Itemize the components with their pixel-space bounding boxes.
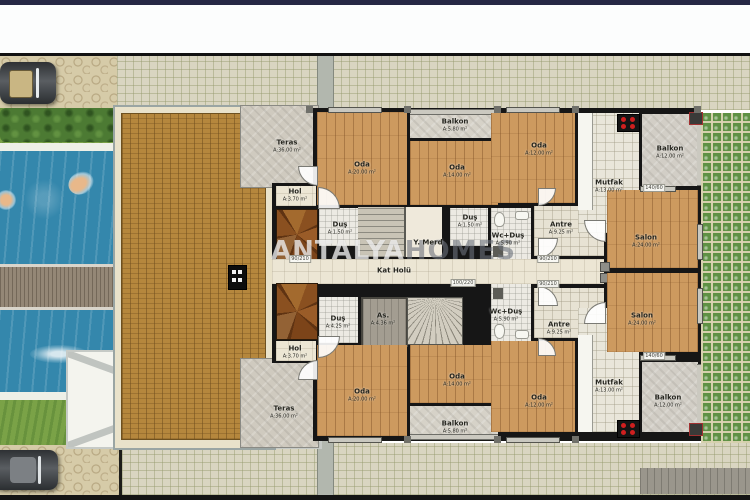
kitchen-counter bbox=[578, 113, 593, 210]
room-oda14-top bbox=[410, 141, 498, 205]
floor-plan-image: ANTALYAHOMES TerasA:36.00 m²OdaA:20.00 m… bbox=[0, 0, 750, 500]
room-oda14-bottom bbox=[410, 345, 498, 403]
window bbox=[328, 437, 382, 443]
room-balkon58-bottom bbox=[410, 406, 498, 434]
window bbox=[697, 288, 703, 324]
spiral-stair-bottom bbox=[276, 283, 318, 340]
room-hol-bottom bbox=[276, 341, 316, 361]
ac-unit bbox=[689, 112, 703, 125]
wall-column bbox=[404, 106, 411, 113]
top-white-strip bbox=[0, 5, 750, 53]
watermark-antalya: ANTALYA bbox=[271, 236, 405, 266]
room-balkon58-top bbox=[410, 113, 498, 138]
car-windshield bbox=[38, 456, 41, 484]
room-oda12-top bbox=[491, 113, 575, 203]
room-oda12-bottom bbox=[491, 341, 575, 432]
window bbox=[697, 224, 703, 260]
room-oda20-bottom bbox=[317, 345, 407, 436]
stove-icon bbox=[617, 114, 640, 132]
stair-winder-bottom bbox=[407, 297, 463, 345]
bottom-black-bar bbox=[0, 495, 750, 500]
sink bbox=[515, 330, 529, 339]
washer bbox=[493, 288, 503, 299]
car-interior bbox=[9, 70, 33, 98]
antalya-homes-watermark: ANTALYAHOMES bbox=[271, 238, 516, 264]
car-top bbox=[0, 62, 56, 104]
ac-unit bbox=[689, 423, 703, 436]
wall-column bbox=[404, 436, 411, 443]
window bbox=[640, 355, 676, 361]
wall-column bbox=[306, 106, 313, 113]
room-hol-top bbox=[276, 186, 316, 206]
sink bbox=[515, 211, 529, 220]
toilet bbox=[494, 212, 505, 227]
grass-paver-area bbox=[701, 113, 750, 443]
wall-edge-bottom bbox=[119, 445, 122, 495]
wall-column bbox=[572, 106, 579, 113]
balcony-railing bbox=[697, 364, 701, 432]
balcony-railing bbox=[697, 116, 701, 186]
kitchen-counter bbox=[578, 335, 593, 432]
window bbox=[328, 107, 382, 113]
room-balkon12-bottom bbox=[642, 362, 698, 432]
toilet bbox=[494, 324, 505, 339]
window bbox=[506, 437, 560, 443]
corridor-end-box bbox=[600, 262, 610, 272]
wall-column bbox=[494, 106, 501, 113]
watermark-homes: HOMES bbox=[405, 236, 516, 266]
room-salon-bottom bbox=[607, 273, 698, 352]
room-salon-top bbox=[607, 190, 698, 268]
car-windshield bbox=[36, 68, 39, 98]
balcony-railing bbox=[410, 109, 498, 115]
car-bottom bbox=[0, 450, 58, 490]
stove-icon bbox=[617, 420, 640, 438]
chimney-icon bbox=[228, 265, 247, 290]
car-roof bbox=[10, 457, 36, 483]
balcony-railing bbox=[410, 434, 498, 440]
gravel-strip bbox=[640, 468, 750, 494]
wall-column bbox=[572, 436, 579, 443]
wall-column bbox=[494, 436, 501, 443]
window bbox=[506, 107, 560, 113]
wall-column bbox=[694, 106, 701, 113]
window bbox=[640, 186, 676, 192]
elevator-as bbox=[361, 297, 408, 347]
paving-top bbox=[117, 56, 750, 110]
